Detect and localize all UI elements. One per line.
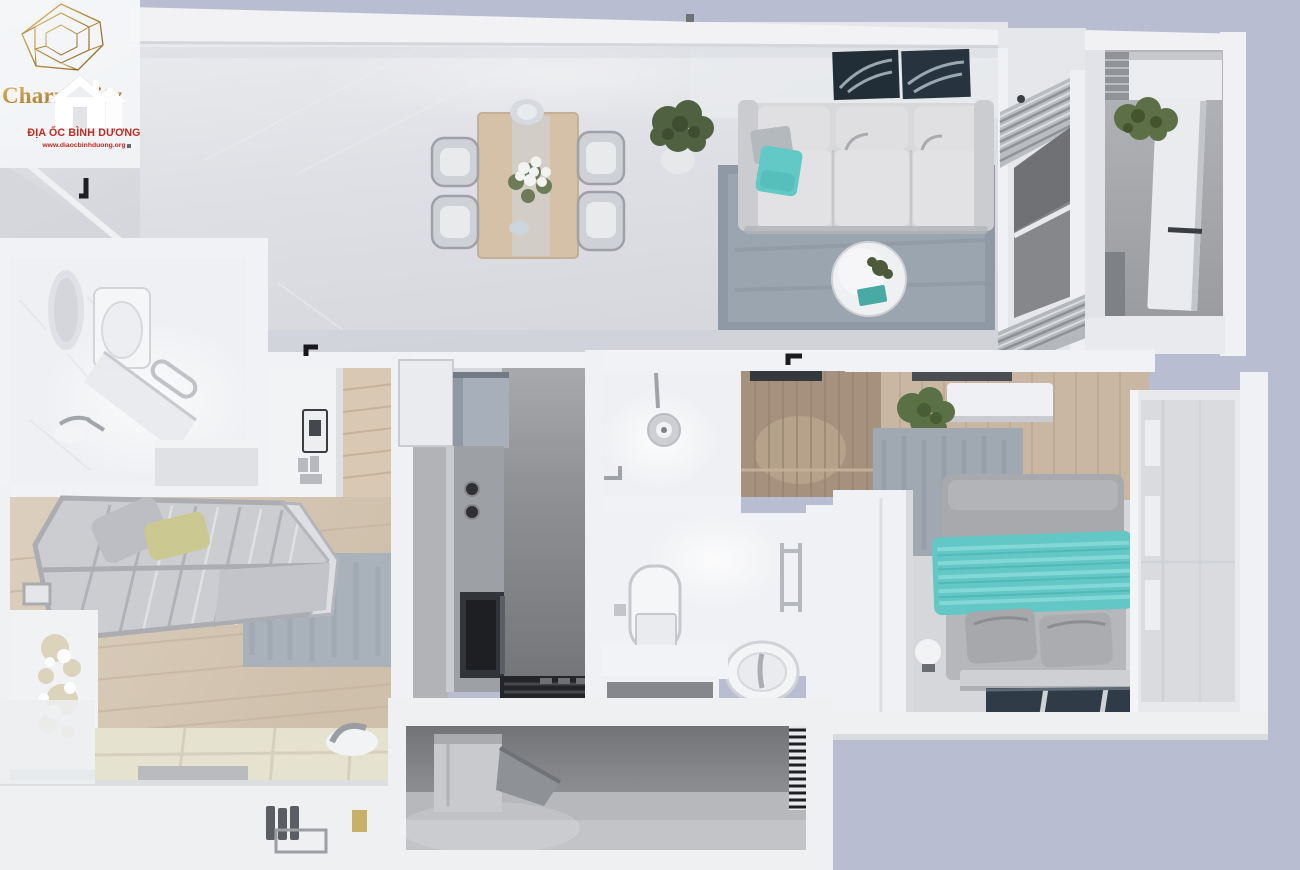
svg-text:ĐỊA ỐC BÌNH DƯƠNG: ĐỊA ỐC BÌNH DƯƠNG <box>27 125 140 139</box>
svg-text:www.diaocbinhduong.org: www.diaocbinhduong.org <box>41 142 125 149</box>
